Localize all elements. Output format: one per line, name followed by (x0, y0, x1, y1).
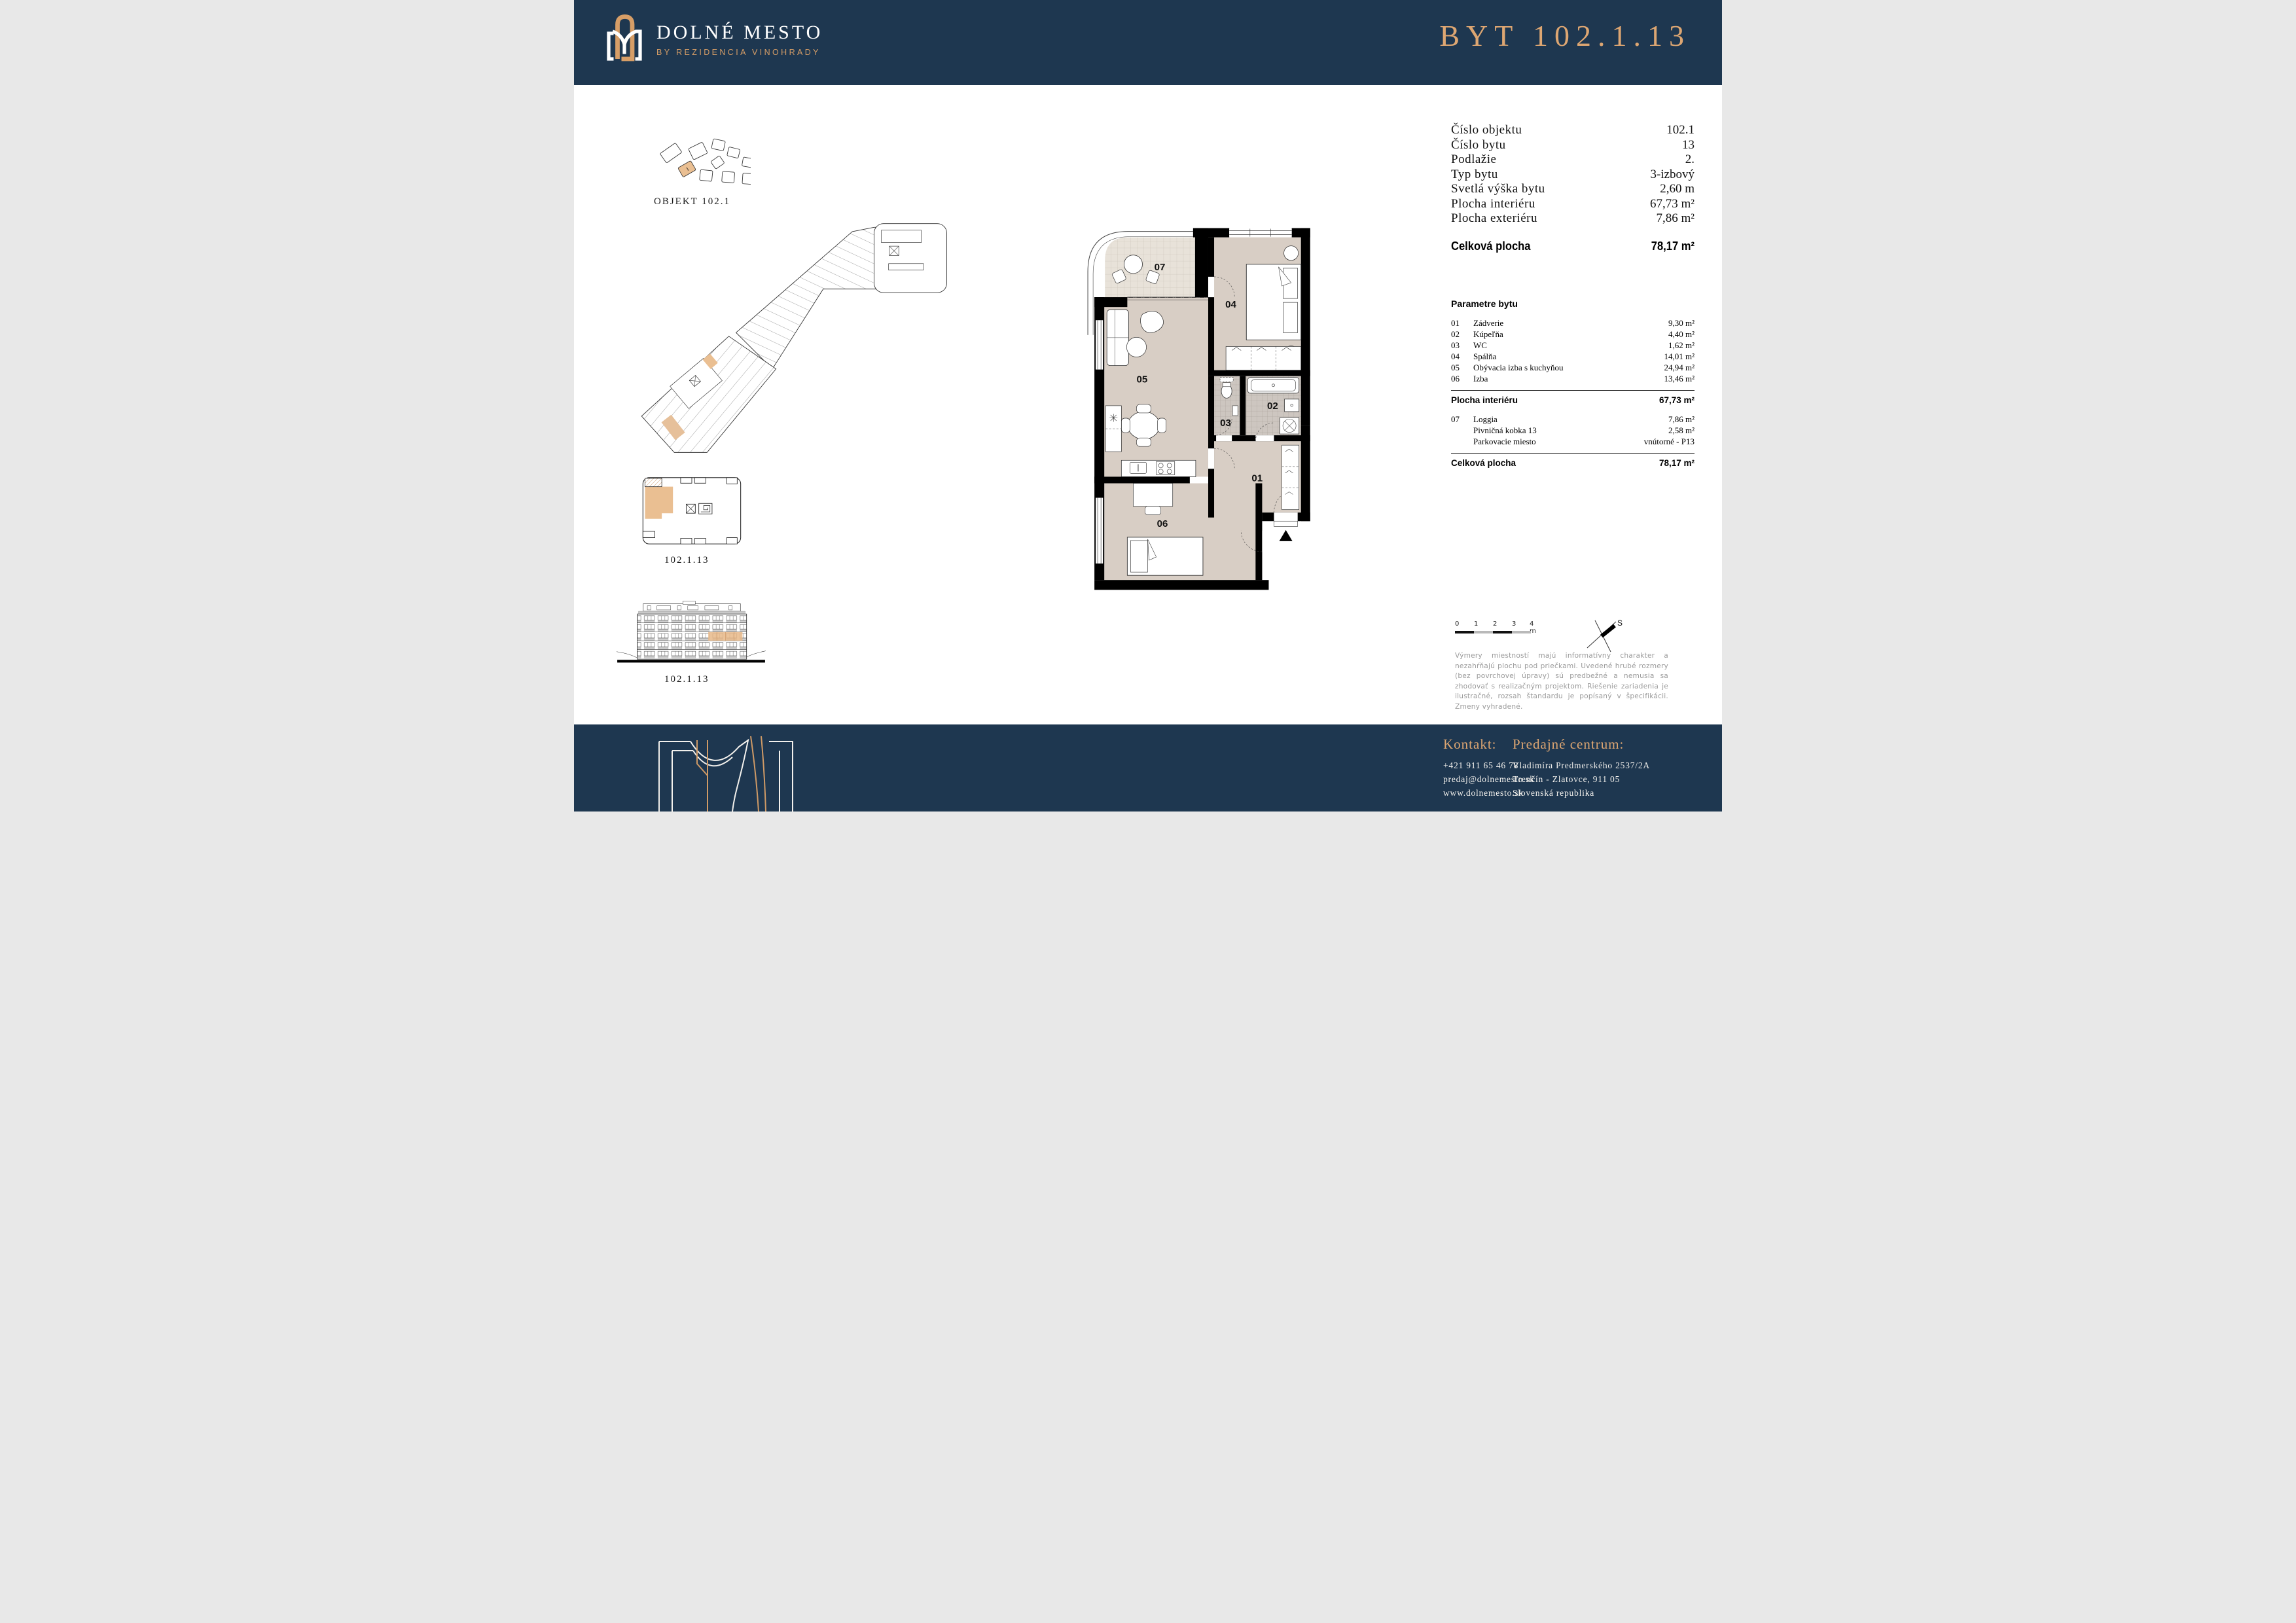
room-label-01: 01 (1251, 473, 1263, 484)
param-num: 03 (1451, 340, 1473, 351)
summary-value: 13 (1682, 138, 1695, 152)
summary-value: 2,60 m (1660, 182, 1695, 196)
brand-subtitle: BY REZIDENCIA VINOHRADY (656, 48, 823, 57)
room-07-loggia-floor (1105, 238, 1195, 297)
sales-address-line3: Slovenská republika (1513, 788, 1650, 798)
param-value: 1,62 m² (1668, 340, 1695, 351)
summary-label: Číslo bytu (1451, 138, 1506, 152)
room-label-03: 03 (1220, 418, 1231, 429)
param-label: Loggia (1473, 414, 1668, 425)
summary-value: 102.1 (1666, 123, 1695, 137)
summary-label: Podlažie (1451, 152, 1496, 167)
total-area-label: Celková plocha (1451, 458, 1516, 468)
summary-label: Plocha interiéru (1451, 197, 1535, 211)
param-num: 02 (1451, 329, 1473, 340)
param-value: 14,01 m² (1664, 351, 1695, 362)
summary-value: 3-izbový (1650, 168, 1695, 182)
apartment-floor-plan: 07 04 05 02 03 01 06 (1078, 221, 1341, 616)
param-num: 01 (1451, 318, 1473, 329)
param-label: Izba (1473, 374, 1664, 384)
scale-tick: 3 (1512, 620, 1516, 628)
param-value: 7,86 m² (1668, 414, 1695, 425)
summary-label: Plocha exteriéru (1451, 211, 1537, 226)
parameters-heading: Parametre bytu (1451, 298, 1695, 309)
param-value: vnútorné - P13 (1644, 437, 1695, 447)
sales-address-line2: Trenčín - Zlatovce, 911 05 (1513, 774, 1650, 785)
floor-position-diagram (639, 473, 744, 550)
divider (1451, 390, 1695, 391)
site-plan: 1 (639, 128, 751, 193)
summary-label: Typ bytu (1451, 168, 1498, 182)
apartment-title: BYT 102.1.13 (1439, 18, 1691, 53)
footer-bar: Kontakt: +421 911 65 46 78 predaj@dolnem… (574, 724, 1722, 811)
scale-tick: 2 (1493, 620, 1497, 628)
room-label-04: 04 (1225, 299, 1236, 310)
total-area-value: 78,17 m² (1659, 458, 1695, 468)
interior-area-value: 67,73 m² (1659, 395, 1695, 405)
param-num: 07 (1451, 414, 1473, 425)
summary-total-label: Celková plocha (1451, 240, 1530, 253)
sales-address-line1: Vladimíra Predmerského 2537/2A (1513, 760, 1650, 771)
param-label: WC (1473, 340, 1668, 351)
site-plan-caption: OBJEKT 102.1 (654, 196, 730, 207)
param-label: Parkovacie miesto (1473, 437, 1644, 447)
param-value: 13,46 m² (1664, 374, 1695, 384)
param-value: 4,40 m² (1668, 329, 1695, 340)
param-label: Kúpeľňa (1473, 329, 1668, 340)
param-value: 2,58 m² (1668, 425, 1695, 436)
brochure-page: DOLNÉ MESTO BY REZIDENCIA VINOHRADY BYT … (574, 0, 1722, 811)
building-elevation (616, 597, 766, 670)
floor-highlighted-loggia (645, 478, 662, 487)
apartment-parameters: Parametre bytu 01Zádverie9,30 m² 02Kúpeľ… (1451, 298, 1695, 477)
divider (1451, 453, 1695, 454)
param-value: 9,30 m² (1668, 318, 1695, 329)
param-label: Pivničná kobka 13 (1473, 425, 1668, 436)
sales-center-heading: Predajné centrum: (1513, 736, 1650, 753)
summary-value: 67,73 m² (1650, 197, 1695, 211)
param-num: 05 (1451, 363, 1473, 373)
param-value: 24,94 m² (1664, 363, 1695, 373)
param-label: Spálňa (1473, 351, 1664, 362)
room-label-06: 06 (1157, 518, 1168, 529)
scale-tick: 1 (1474, 620, 1478, 628)
summary-label: Číslo objektu (1451, 123, 1522, 137)
param-num: 06 (1451, 374, 1473, 384)
param-label: Zádverie (1473, 318, 1668, 329)
room-label-05: 05 (1136, 374, 1147, 385)
param-num: 04 (1451, 351, 1473, 362)
param-label: Obývacia izba s kuchyňou (1473, 363, 1664, 373)
scale-bar: 0 1 2 3 4 m (1455, 620, 1532, 637)
footer-sales-center: Predajné centrum: Vladimíra Predmerského… (1513, 736, 1650, 802)
floor-position-caption: 102.1.13 (664, 555, 709, 566)
apartment-summary: Číslo objektu102.1 Číslo bytu13 Podlažie… (1451, 123, 1695, 253)
entry-arrow (1280, 530, 1293, 541)
brand-name: DOLNÉ MESTO (656, 22, 823, 44)
disclaimer-text: Výmery miestností majú informatívny char… (1455, 651, 1668, 712)
compass-north-label: S (1617, 618, 1623, 628)
elevation-caption: 102.1.13 (664, 674, 709, 685)
summary-value: 7,86 m² (1657, 211, 1695, 226)
interior-area-label: Plocha interiéru (1451, 395, 1518, 405)
room-label-02: 02 (1267, 401, 1278, 412)
summary-label: Svetlá výška bytu (1451, 182, 1545, 196)
summary-total-value: 78,17 m² (1651, 240, 1695, 253)
garage-plan (620, 213, 983, 456)
brand-logo-icon (603, 12, 646, 66)
summary-value: 2. (1685, 152, 1695, 167)
header-bar: DOLNÉ MESTO BY REZIDENCIA VINOHRADY BYT … (574, 0, 1722, 85)
scale-tick: 0 (1455, 620, 1459, 628)
footer-watermark-monogram (594, 724, 869, 811)
room-label-07: 07 (1155, 262, 1166, 273)
